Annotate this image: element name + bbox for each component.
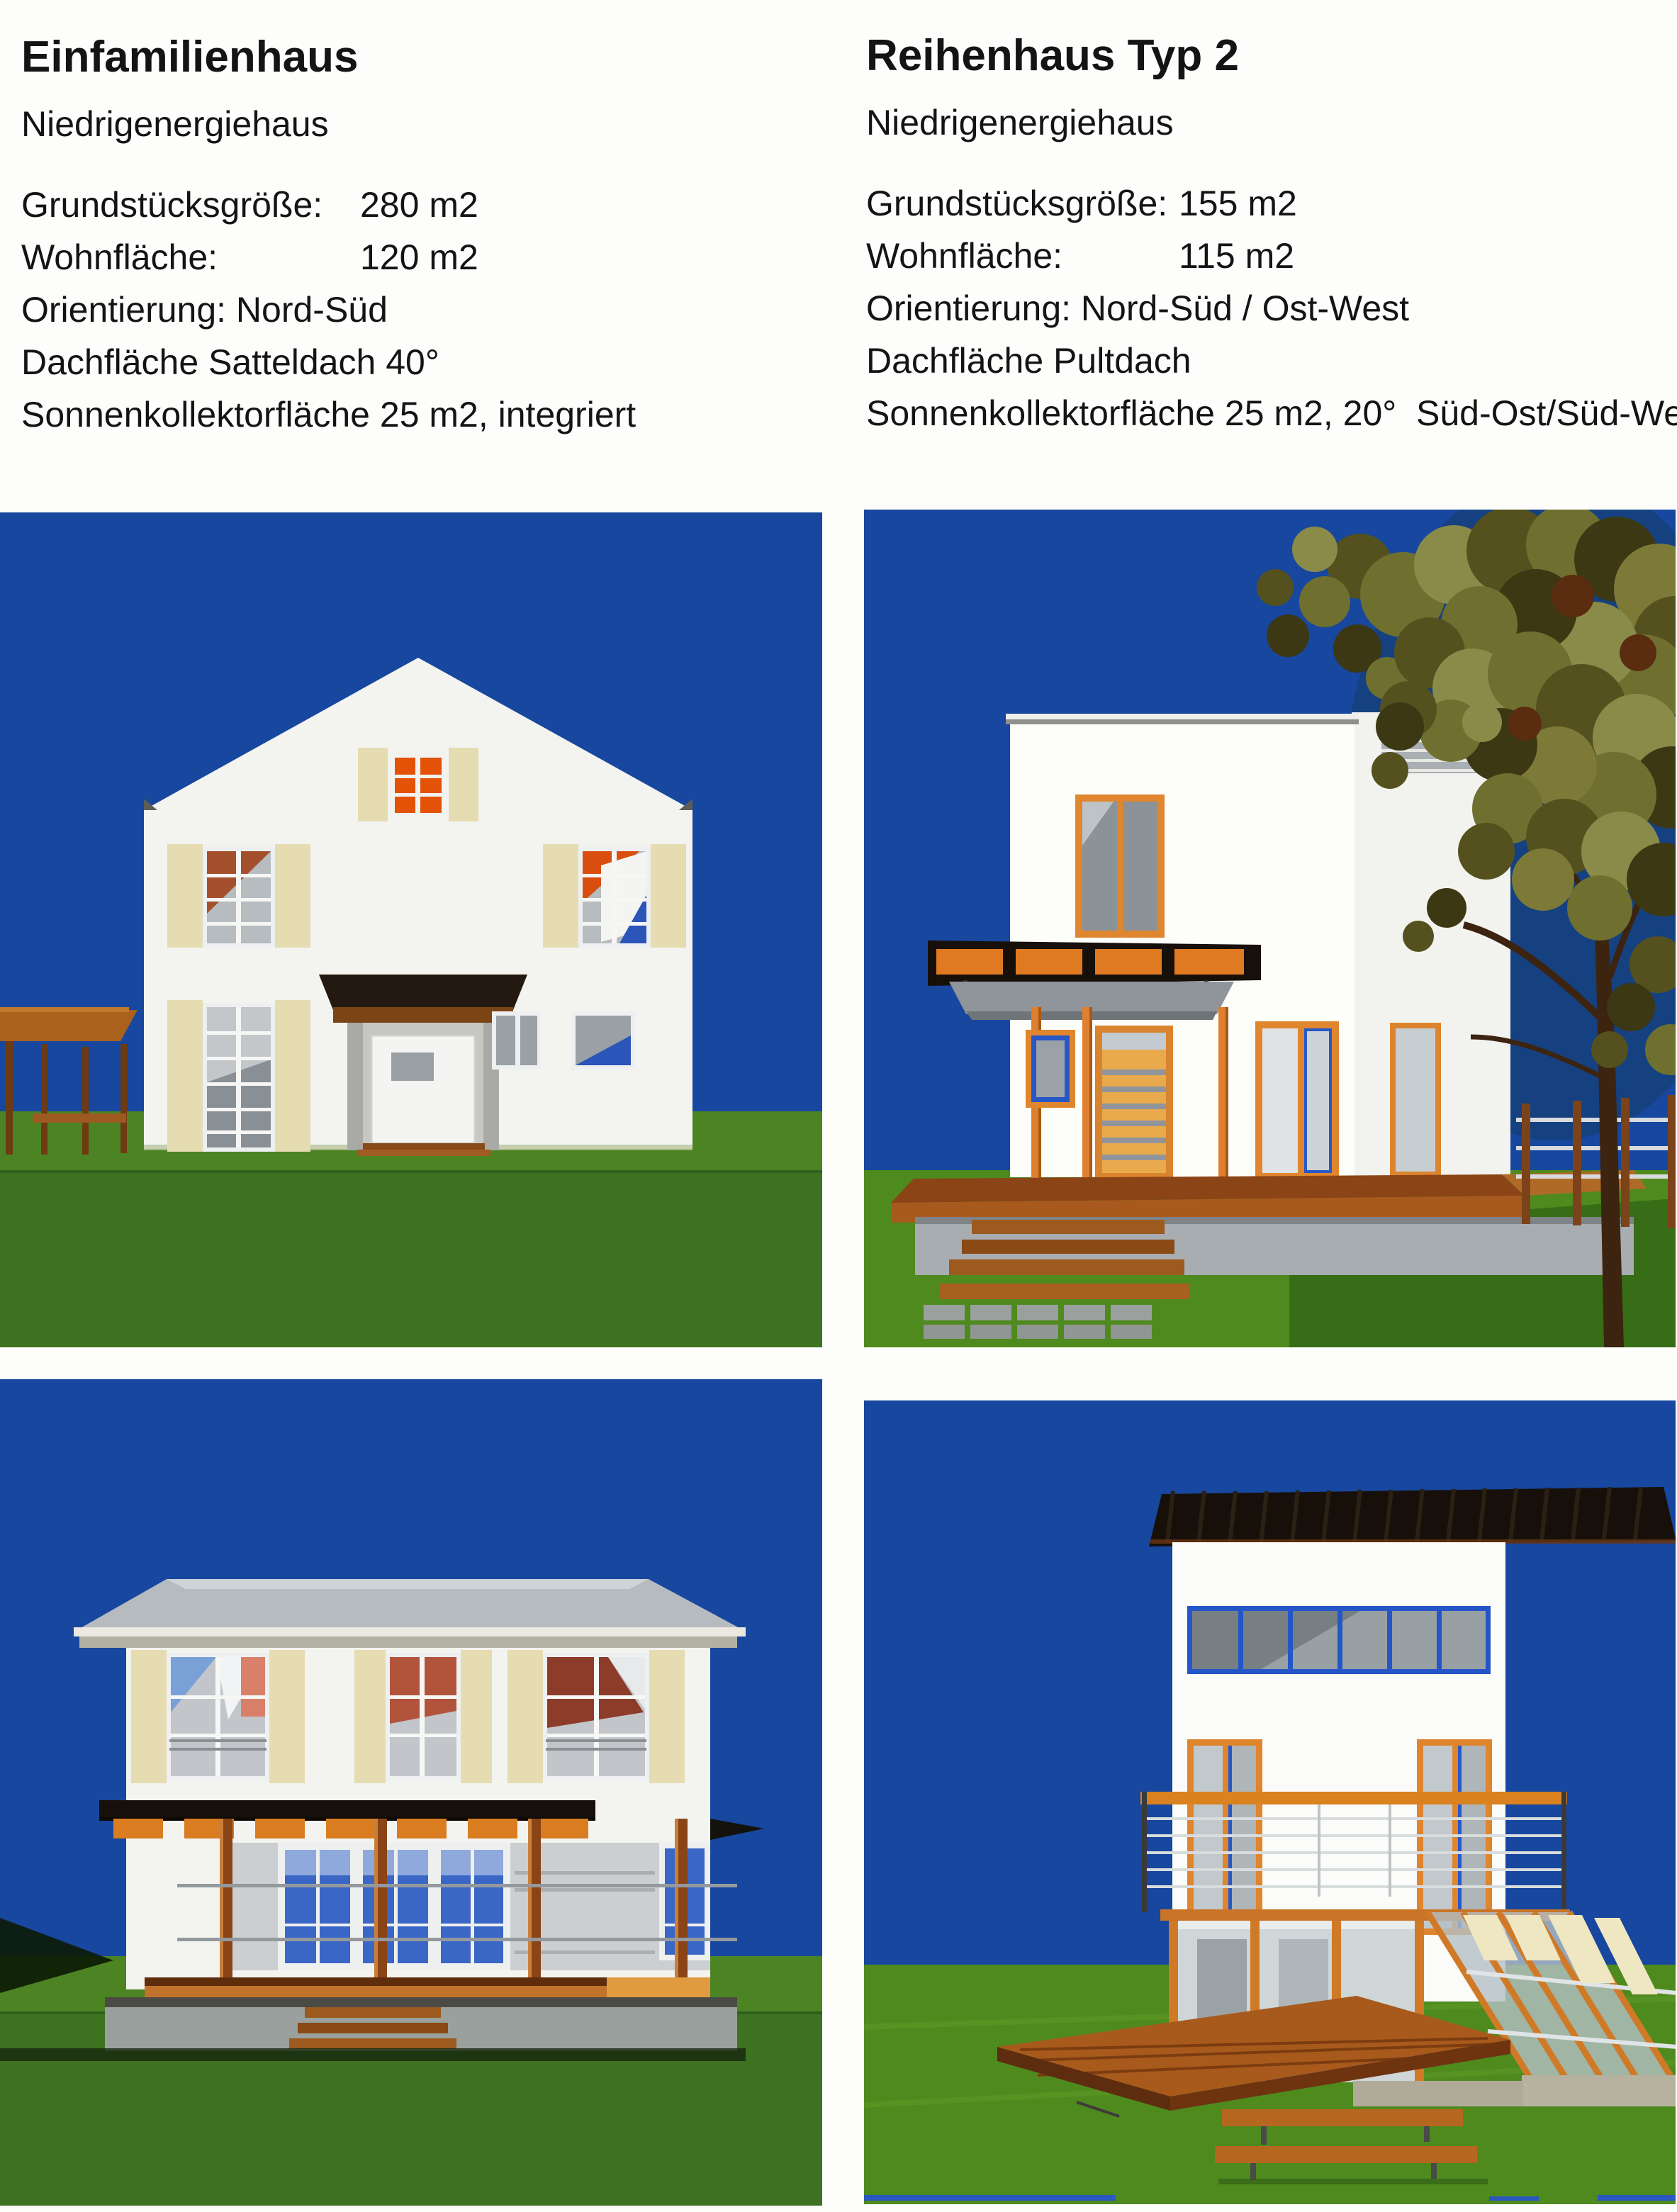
upper-right-window <box>543 844 686 948</box>
rendering-reihenhaus-rear <box>864 1400 1676 2204</box>
door-window <box>391 1052 434 1081</box>
spec-label: Grundstücksgröße: <box>21 179 360 231</box>
spec-label: Orientierung: Nord-Süd <box>21 283 388 336</box>
clerestory-window <box>1187 1606 1491 1674</box>
spec-row: Orientierung: Nord-Süd <box>21 283 636 336</box>
upper-left-window <box>167 844 310 948</box>
front-door <box>1095 1026 1173 1180</box>
door-side-window <box>1026 1030 1075 1108</box>
terrace-steps <box>305 2007 441 2018</box>
terrace-window <box>1255 1021 1339 1180</box>
spec-label: Sonnenkollektorfläche 25 m2, 20° Süd-Ost… <box>866 387 1677 439</box>
spec-row: Grundstücksgröße: 155 m2 <box>866 177 1677 230</box>
brise-soleil-canopy <box>1149 1487 1676 1546</box>
spec-label: Dachfläche Pultdach <box>866 335 1191 387</box>
spec-label: Wohnfläche: <box>866 230 1179 282</box>
ground-glazing <box>227 1843 710 1970</box>
upper-window-3 <box>507 1650 685 1783</box>
attic-window <box>358 748 478 821</box>
hipped-roof <box>74 1579 746 1648</box>
project-subtitle-left: Niedrigenergiehaus <box>21 106 329 142</box>
reihenhaus-rear-scene <box>864 1400 1676 2204</box>
spec-value: 120 m2 <box>360 231 478 283</box>
spec-label: Dachfläche Satteldach 40° <box>21 336 439 388</box>
spec-label: Sonnenkollektorfläche 25 m2, integriert <box>21 388 636 441</box>
upper-window-2 <box>354 1650 492 1783</box>
front-door <box>371 1035 475 1143</box>
spec-row: Orientierung: Nord-Süd / Ost-West <box>866 282 1677 335</box>
ground-small-window-1 <box>492 1011 542 1069</box>
spec-row: Sonnenkollektorfläche 25 m2, integriert <box>21 388 636 441</box>
einfamilienhaus-front-scene <box>0 512 822 1347</box>
ground-small-window-2 <box>571 1011 635 1069</box>
spec-row: Sonnenkollektorfläche 25 m2, 20° Süd-Ost… <box>866 387 1677 439</box>
terrace-paving <box>105 1997 737 2051</box>
spec-value: 280 m2 <box>360 179 478 231</box>
wood-deck <box>145 1977 710 1997</box>
spec-row: Grundstücksgröße: 280 m2 <box>21 179 636 231</box>
spec-row: Dachfläche Pultdach <box>866 335 1677 387</box>
brochure-page: Einfamilienhaus Niedrigenergiehaus Reihe… <box>0 0 1677 2212</box>
spec-list-left: Grundstücksgröße: 280 m2 Wohnfläche: 120… <box>21 179 636 441</box>
rear-door-window <box>1390 1023 1441 1177</box>
rendering-reihenhaus-front <box>864 510 1676 1347</box>
door-steps <box>363 1143 485 1150</box>
spec-row: Wohnfläche: 120 m2 <box>21 231 636 283</box>
ground-left-window <box>167 1000 310 1152</box>
project-title-reihenhaus: Reihenhaus Typ 2 <box>866 34 1239 78</box>
upper-window-1 <box>131 1650 305 1783</box>
house-base-shadow <box>0 2048 746 2061</box>
upper-window <box>1075 795 1165 938</box>
einfamilienhaus-rear-scene <box>0 1379 822 2206</box>
scan-strip <box>864 2195 1116 2201</box>
deck-steps <box>939 1220 1190 1299</box>
spec-label: Grundstücksgröße: <box>866 177 1179 230</box>
rendering-einfamilienhaus-rear <box>0 1379 822 2206</box>
spec-label: Orientierung: Nord-Süd / Ost-West <box>866 282 1409 335</box>
cornice <box>79 1636 737 1648</box>
spec-value: 155 m2 <box>1179 177 1297 230</box>
spec-row: Wohnfläche: 115 m2 <box>866 230 1677 282</box>
spec-list-right: Grundstücksgröße: 155 m2 Wohnfläche: 115… <box>866 177 1677 439</box>
project-subtitle-right: Niedrigenergiehaus <box>866 105 1174 140</box>
project-title-einfamilienhaus: Einfamilienhaus <box>21 35 358 79</box>
spec-label: Wohnfläche: <box>21 231 360 283</box>
spec-row: Dachfläche Satteldach 40° <box>21 336 636 388</box>
reihenhaus-front-scene <box>864 510 1676 1347</box>
rendering-einfamilienhaus-front <box>0 512 822 1347</box>
spec-value: 115 m2 <box>1179 230 1294 282</box>
